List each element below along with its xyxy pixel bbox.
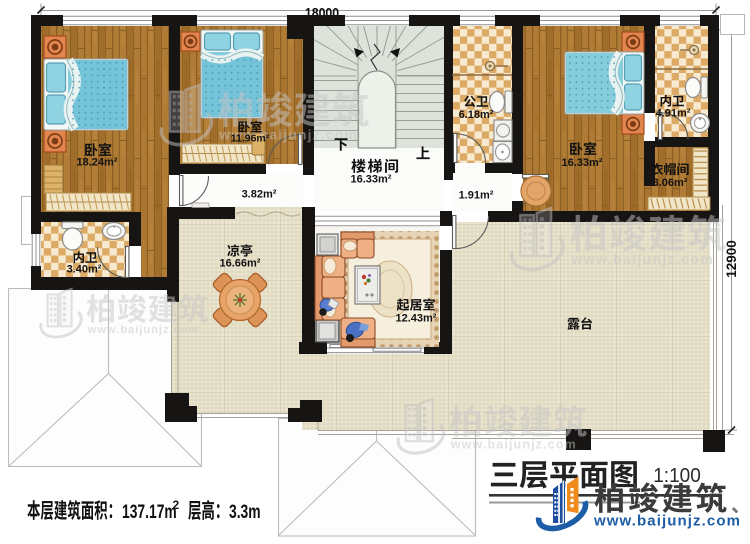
svg-text:16.33m²: 16.33m² — [562, 157, 603, 169]
svg-text:www.baijunjz.com: www.baijunjz.com — [593, 513, 741, 530]
svg-text:www.baijunjz.com: www.baijunjz.com — [450, 437, 577, 451]
svg-text:3.40m²: 3.40m² — [67, 264, 102, 276]
svg-text:16.66m²: 16.66m² — [220, 258, 261, 270]
svg-text:18.24m²: 18.24m² — [77, 157, 118, 169]
svg-text:16.33m²: 16.33m² — [351, 174, 392, 186]
svg-text:11.96m²: 11.96m² — [231, 133, 270, 145]
svg-text:12900: 12900 — [724, 240, 739, 278]
svg-text:1:100: 1:100 — [653, 465, 701, 488]
svg-text:6.18m²: 6.18m² — [459, 109, 494, 121]
svg-text:www.baijunjz.com: www.baijunjz.com — [570, 252, 714, 268]
svg-text:3.82m²: 3.82m² — [242, 189, 277, 201]
svg-text:2: 2 — [173, 498, 180, 512]
svg-text:www.baijunjz.com: www.baijunjz.com — [87, 324, 200, 336]
svg-text:4.91m²: 4.91m² — [656, 108, 691, 120]
svg-text:3.06m²: 3.06m² — [653, 177, 688, 189]
svg-text:12.43m²: 12.43m² — [396, 313, 437, 325]
svg-text:3.3m: 3.3m — [229, 501, 261, 523]
svg-text:1.91m²: 1.91m² — [459, 190, 494, 202]
svg-text:137.17m: 137.17m — [122, 501, 177, 523]
